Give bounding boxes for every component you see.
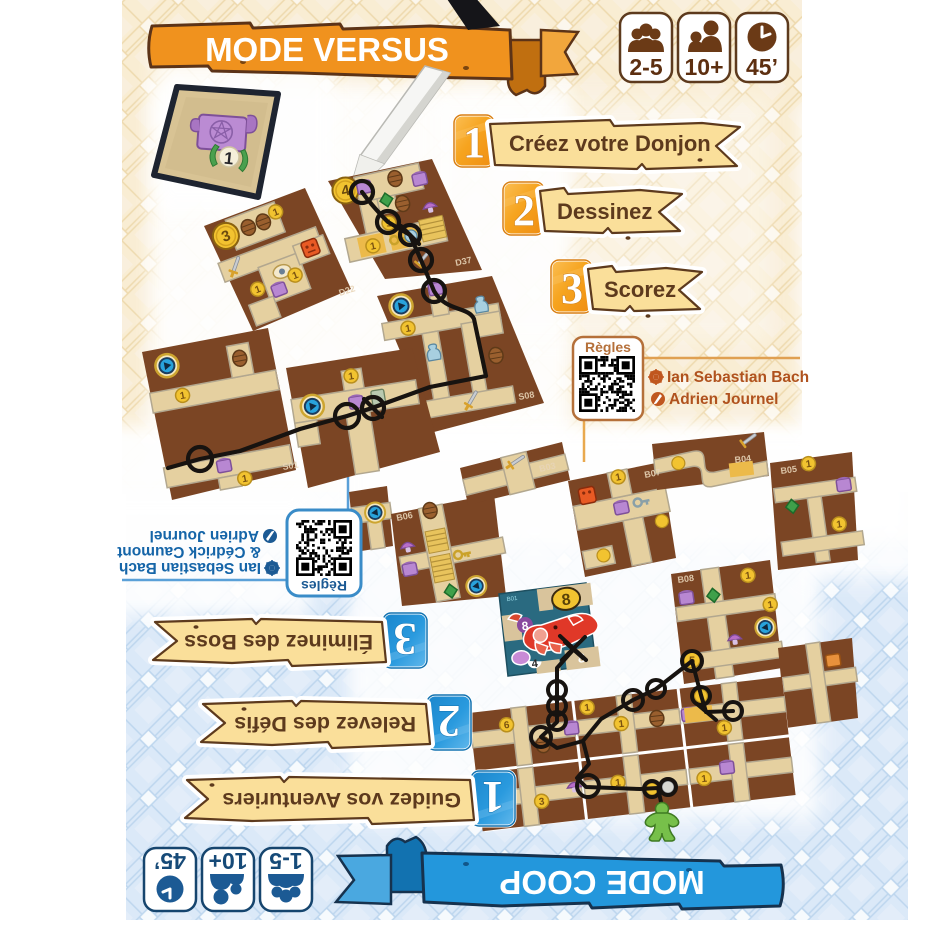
svg-text:B04: B04 (734, 453, 752, 465)
svg-text:10+: 10+ (208, 848, 247, 874)
svg-text:45’: 45’ (746, 54, 778, 80)
svg-text:Ian Sebastian Bach: Ian Sebastian Bach (119, 559, 261, 576)
svg-text:Scorez: Scorez (604, 277, 676, 302)
svg-text:Ian Sebastian Bach: Ian Sebastian Bach (667, 369, 809, 386)
svg-text:Guidez vos Aventuriers: Guidez vos Aventuriers (222, 788, 461, 812)
svg-text:2: 2 (438, 696, 461, 747)
svg-text:2: 2 (513, 186, 535, 235)
svg-text:Règles: Règles (585, 339, 631, 355)
svg-text:Règles: Règles (301, 578, 347, 594)
svg-text:MODE COOP: MODE COOP (499, 864, 704, 901)
svg-text:& Cédrick Caumont: & Cédrick Caumont (117, 543, 261, 560)
svg-text:10+: 10+ (684, 54, 723, 80)
svg-text:1: 1 (463, 118, 485, 167)
svg-text:3: 3 (394, 614, 417, 665)
svg-text:MODE VERSUS: MODE VERSUS (205, 31, 449, 68)
svg-text:Adrien Journel: Adrien Journel (150, 527, 259, 544)
svg-text:Adrien Journel: Adrien Journel (669, 391, 778, 408)
svg-text:1: 1 (482, 772, 505, 823)
svg-text:1-5: 1-5 (269, 848, 302, 874)
svg-text:45’: 45’ (154, 848, 186, 874)
svg-text:Dessinez: Dessinez (557, 199, 652, 224)
svg-text:2-5: 2-5 (629, 54, 662, 80)
svg-text:Relevez des Défis: Relevez des Défis (234, 712, 416, 736)
svg-text:Créez votre Donjon: Créez votre Donjon (509, 131, 711, 156)
svg-text:1: 1 (223, 149, 234, 169)
svg-text:Éliminez des Boss: Éliminez des Boss (184, 630, 373, 655)
svg-text:3: 3 (561, 264, 583, 313)
